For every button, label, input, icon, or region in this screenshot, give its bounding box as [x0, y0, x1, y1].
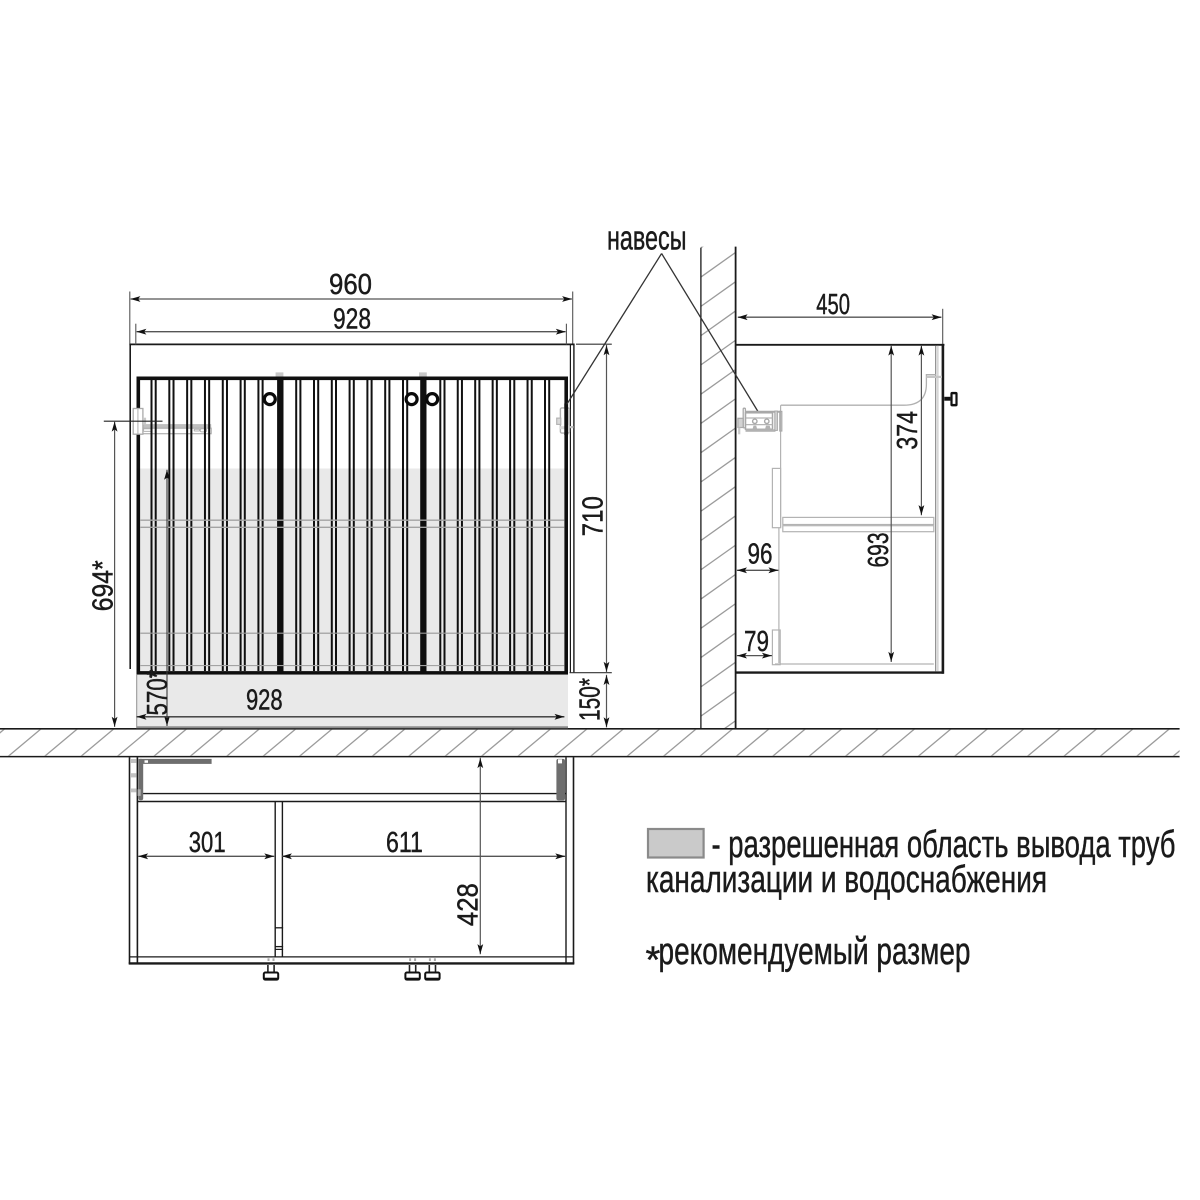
svg-text:611: 611 — [386, 827, 423, 859]
svg-text:96: 96 — [748, 538, 773, 570]
svg-text:канализации и водоснабжения: канализации и водоснабжения — [646, 859, 1047, 901]
svg-text:570*: 570* — [142, 670, 174, 716]
svg-text:928: 928 — [333, 304, 371, 336]
svg-text:694*: 694* — [87, 560, 119, 611]
svg-text:450: 450 — [816, 289, 850, 321]
svg-text:301: 301 — [189, 827, 226, 859]
svg-text:навесы: навесы — [607, 219, 687, 257]
svg-text:428: 428 — [453, 883, 485, 926]
svg-text:710: 710 — [578, 496, 610, 536]
svg-text:150*: 150* — [575, 678, 607, 721]
svg-text:960: 960 — [329, 269, 372, 301]
svg-text:374: 374 — [892, 411, 924, 450]
svg-text:рекомендуемый размер: рекомендуемый размер — [659, 931, 971, 973]
svg-text:79: 79 — [744, 626, 769, 658]
svg-text:928: 928 — [246, 684, 283, 716]
svg-text:693: 693 — [863, 533, 895, 568]
